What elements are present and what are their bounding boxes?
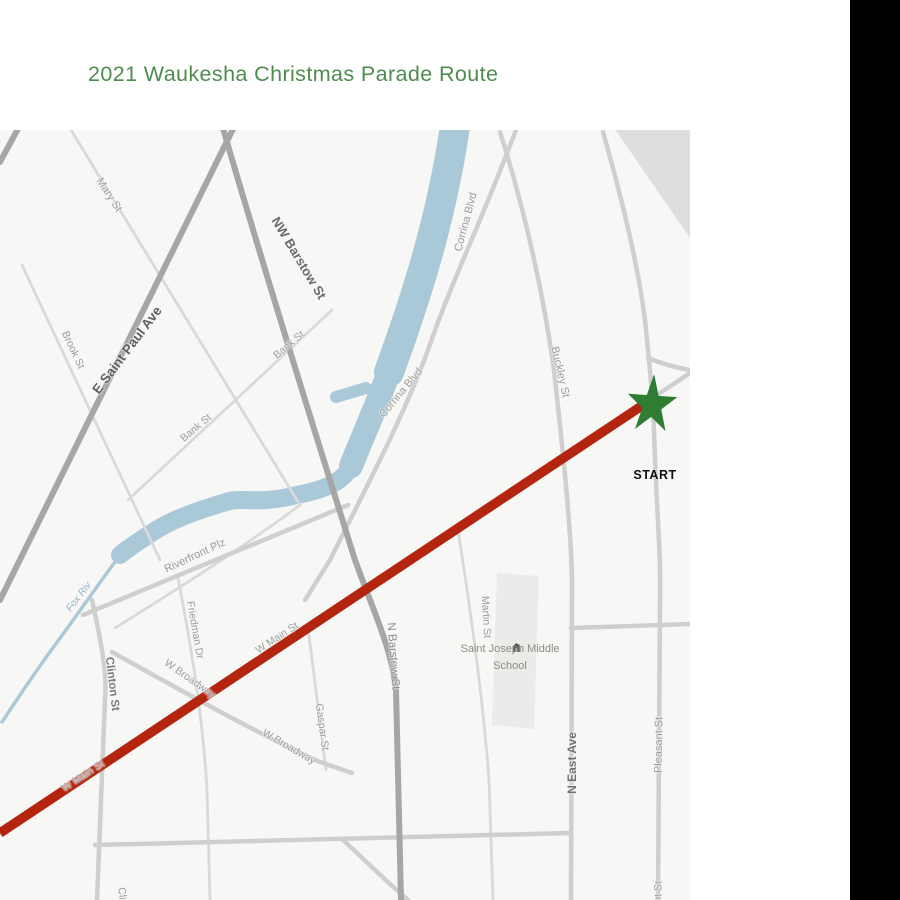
roads [0,130,690,900]
road-w-broadway [112,652,352,773]
right-black-panel [850,0,900,900]
start-label: START [633,468,676,482]
road-clinton-st [92,600,105,900]
river-stream [2,555,120,722]
park-area-polygon [612,130,690,238]
road-martin-st [458,530,493,900]
road-buckley-neast [500,132,572,900]
river [2,130,456,722]
road-bank-st [128,310,332,500]
road-bottom-horizontal [95,833,570,845]
road-e-saint-paul-ave [0,130,235,600]
road-corner-segment [0,130,20,162]
school-label-line1: Saint Joseph Middle [460,641,559,658]
school-label: Saint Joseph Middle School [460,641,559,675]
map-canvas: Mary StNW Barstow StE Saint Paul AveBroo… [0,130,690,900]
river-upper [389,130,456,372]
page-title: 2021 Waukesha Christmas Parade Route [88,62,498,87]
road-pleasant-st [603,132,660,900]
river-lower [120,466,351,555]
map-graphic [0,130,690,900]
river-fork [336,388,366,397]
road-corrina-blvd [305,130,516,600]
road-nw-barstow-st [222,130,401,900]
road-right-horizontal [571,624,690,628]
school-label-line2: School [460,658,559,675]
page: 2021 Waukesha Christmas Parade Route [0,0,900,900]
road-gaspar-st [308,628,326,770]
road-friedman-dr [178,578,210,900]
road-east-branch [648,358,690,370]
